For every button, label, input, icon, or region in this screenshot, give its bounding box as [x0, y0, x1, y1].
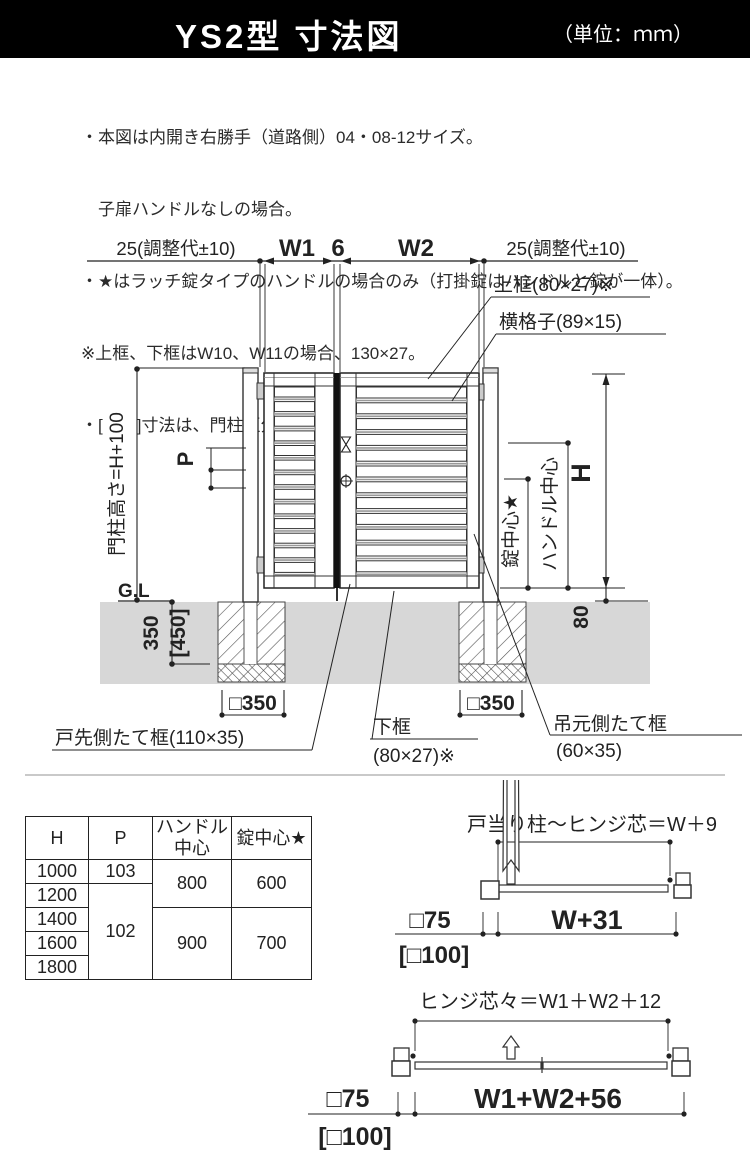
post-height-dimension [134, 366, 245, 603]
hinge-pivot-icon [666, 1053, 671, 1058]
dim-350: 350 [140, 615, 163, 650]
dim-80: 80 [570, 605, 593, 628]
dim-450: [450] [167, 608, 190, 657]
dim-adjust-left: 25(調整代±10) [116, 238, 235, 259]
main-door [339, 373, 479, 588]
plan-top: 戸当り柱～ヒンジ芯＝W＋9 [395, 780, 717, 969]
p-dimension [206, 448, 246, 491]
plan-bottom-right-post [666, 1048, 690, 1076]
label-gl: G.L [118, 581, 150, 602]
label-handle-center: ハンドル中心 [539, 457, 561, 571]
dim-w1: W1 [279, 235, 315, 262]
page-title: YS2型 寸法図 [175, 10, 403, 58]
dim-gap6: 6 [331, 235, 344, 262]
left-gate-post [243, 368, 266, 602]
plan-bottom-left-post [392, 1048, 416, 1076]
plan-top-post-size: □75 [409, 907, 450, 934]
svg-text:戸先側たて框(110×35): 戸先側たて框(110×35) [55, 727, 244, 749]
plan-bottom-post-size: □75 [327, 1085, 370, 1113]
svg-text:吊元側たて框: 吊元側たて框 [553, 713, 667, 735]
plan-top-stop-post [481, 881, 499, 899]
section-divider [25, 774, 725, 776]
svg-text:(60×35): (60×35) [556, 741, 622, 762]
child-door [264, 373, 334, 588]
dim-w2: W2 [398, 235, 434, 262]
plan-bottom-gate-bar-right [543, 1062, 667, 1069]
door-meeting-gap [334, 373, 340, 588]
plan-top-dim: W+31 [551, 905, 622, 935]
svg-text:下框: 下框 [373, 716, 411, 738]
plan-top-hinge-post [667, 873, 691, 898]
dim-adjust-right: 25(調整代±10) [506, 238, 625, 259]
plan-bottom: ヒンジ芯々＝W1＋W2＋12 [308, 990, 690, 1151]
plan-bottom-title: ヒンジ芯々＝W1＋W2＋12 [419, 990, 661, 1013]
plan-bottom-dim: W1+W2+56 [474, 1083, 622, 1114]
plan-bottom-gate-bar-left [415, 1062, 541, 1069]
open-direction-arrow-icon [503, 1036, 519, 1059]
svg-text:(80×27)※: (80×27)※ [373, 746, 455, 767]
label-p: P [173, 452, 198, 467]
page: YS2型 寸法図 （単位：ｍｍ） ・本図は内開き右勝手（道路側）04・08-12… [0, 0, 750, 1173]
svg-text:横格子(89×15): 横格子(89×15) [499, 311, 622, 333]
plan-bottom-post-size-alt: [□100] [318, 1123, 391, 1151]
title-bar: YS2型 寸法図 （単位：ｍｍ） [0, 0, 750, 58]
label-h: H [566, 463, 596, 483]
hinge-pivot-icon [667, 877, 672, 882]
svg-text:上框(80×27)※: 上框(80×27)※ [494, 274, 614, 296]
note-line: ・本図は内開き右勝手（道路側）04・08-12サイズ。 [81, 126, 741, 150]
right-dimensions [500, 374, 648, 604]
elevation-drawing: 25(調整代±10) W1 6 W2 25(調整代±10) [0, 210, 750, 780]
plan-top-gate-bar [498, 885, 668, 892]
hinge-pivot-icon [410, 1053, 415, 1058]
dim-sq350-left: □350 [229, 692, 277, 715]
plan-top-post-size-alt: [□100] [399, 942, 470, 969]
plan-diagrams: 戸当り柱～ヒンジ芯＝W＋9 [0, 780, 750, 1173]
unit-label: （単位：ｍｍ） [553, 18, 693, 47]
label-post-height: 門柱高さ=H+100 [106, 412, 128, 556]
dim-sq350-right: □350 [467, 692, 515, 715]
label-lock-center: 錠中心★ [500, 494, 522, 568]
